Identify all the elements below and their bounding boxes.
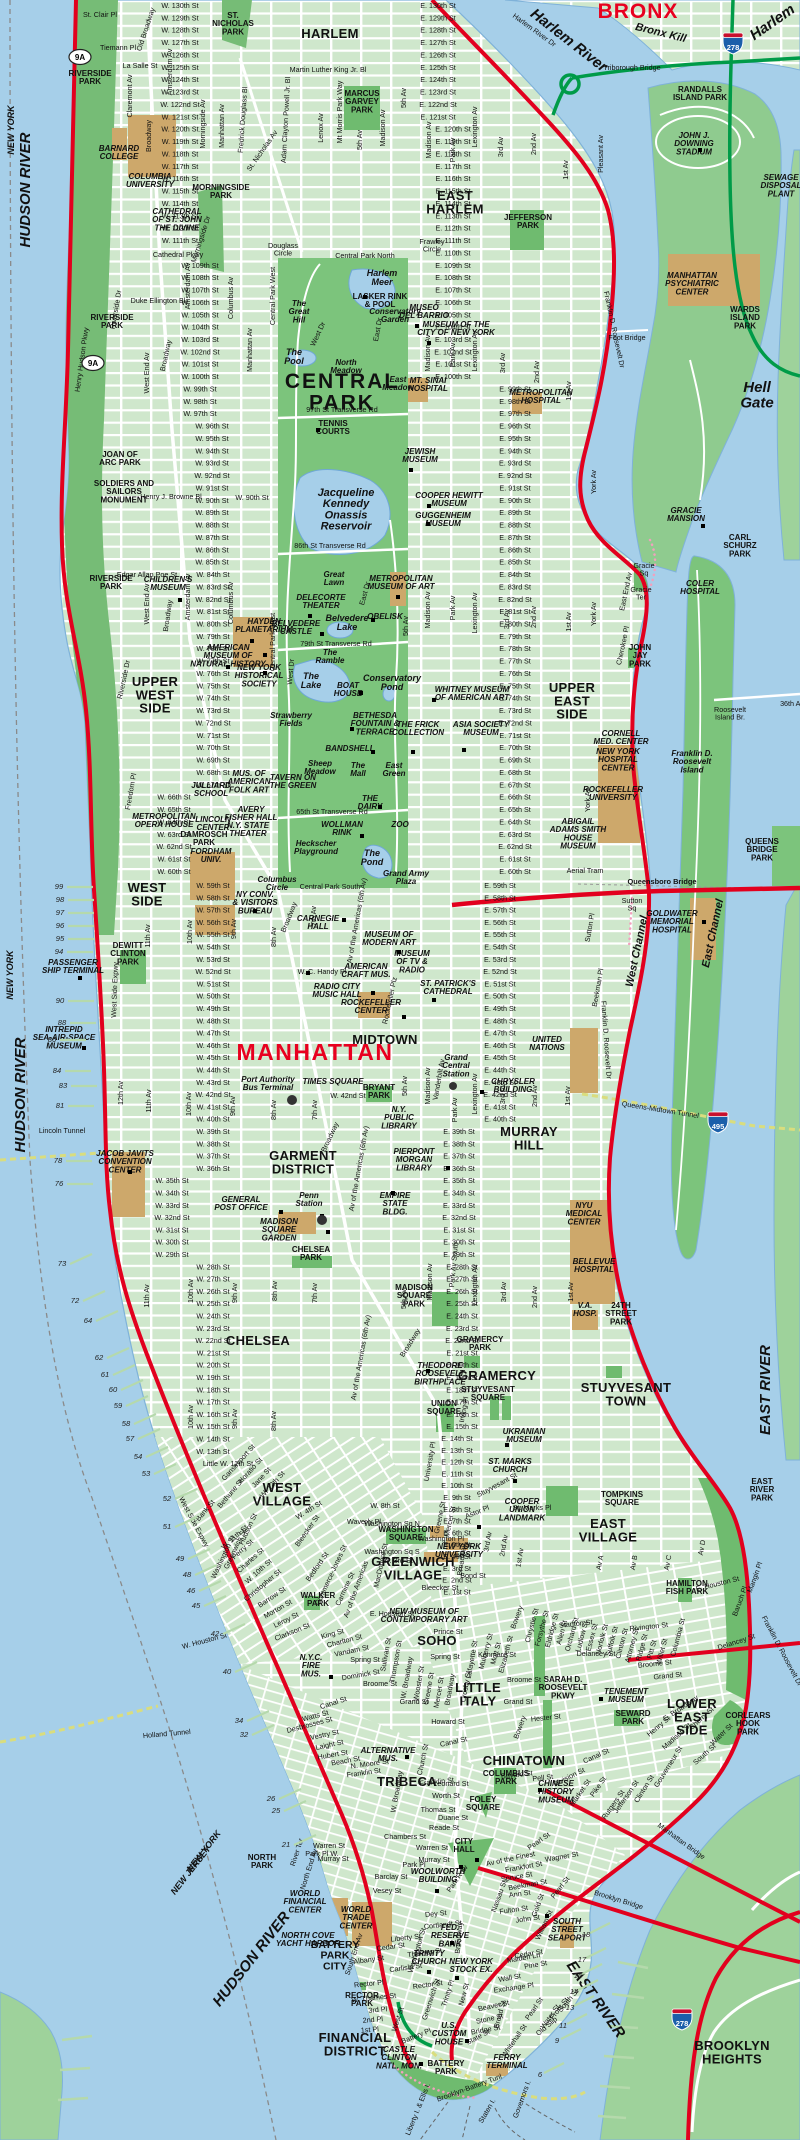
street-label: E. 93rd St	[499, 459, 531, 468]
map-label: Delancey St	[577, 1649, 616, 1658]
street-label: E. 34th St	[443, 1189, 475, 1198]
map-label: JEWISHMUSEUM	[402, 447, 438, 464]
map-label: Leonard St	[433, 1779, 468, 1788]
map-label: 10th Av	[186, 1405, 195, 1429]
map-label: Reade St	[429, 1823, 459, 1832]
street-label: E. 65th St	[499, 805, 531, 814]
street-label: W. 30th St	[155, 1238, 188, 1247]
map-label: 5th Av	[400, 1076, 409, 1096]
poi-marker	[450, 1941, 454, 1945]
street-label: W. 45th St	[196, 1053, 229, 1062]
map-label: 9th Av	[230, 1409, 239, 1429]
street-label: E. 4th St	[443, 1552, 471, 1561]
map-label: TheLake	[301, 671, 322, 690]
poi-marker	[432, 998, 436, 1002]
map-label: WARDSISLANDPARK	[730, 305, 760, 330]
map-label: HARLEM	[301, 26, 358, 41]
street-label: W. 119th St	[162, 137, 199, 146]
pier-number: 18	[582, 1930, 591, 1939]
station-dot	[449, 1082, 457, 1090]
map-label: Central Park North	[335, 251, 395, 260]
street-label: E. 70th St	[499, 743, 531, 752]
pier-number: 45	[192, 1601, 201, 1610]
street-label: W. 52nd St	[195, 967, 230, 976]
street-label: W. 90th St	[195, 496, 228, 505]
pier-number: 58	[122, 1419, 131, 1428]
street-label: E. 92nd St	[498, 471, 532, 480]
pier-number: 32	[240, 1730, 249, 1739]
map-label: TENEMENTMUSEUM	[604, 1687, 649, 1704]
street-label: W. 102nd St	[180, 347, 219, 356]
street-label: E. 26th St	[446, 1287, 478, 1296]
map-label: NEW YORKHOSPITALCENTER	[596, 747, 641, 772]
street-label: E. 72nd St	[498, 718, 532, 727]
map-label: GOLDWATERMEMORIALHOSPITAL	[646, 909, 698, 934]
street-label: E. 47th St	[484, 1029, 516, 1038]
poi-marker	[363, 295, 367, 299]
map-label: 5th Av	[399, 88, 408, 108]
map-label: BOATHOUSE	[334, 681, 363, 698]
street-label: W. 99th St	[183, 384, 216, 393]
map-label: Central Park South	[300, 882, 361, 891]
poi-marker	[455, 1976, 459, 1980]
pier-number: 40	[223, 1667, 232, 1676]
map-label: PASSENGERSHIP TERMINAL	[42, 958, 104, 975]
street-label: W. 74th St	[196, 694, 229, 703]
map-label: Broome St	[507, 1675, 541, 1684]
pier-number: 94	[55, 947, 63, 956]
street-label: W. 60th St	[157, 867, 190, 876]
map-label: 8th Av	[269, 1411, 278, 1431]
map-label: 2nd Pl	[362, 2014, 383, 2025]
street-label: W. 93rd St	[195, 459, 229, 468]
street-label: W. 70th St	[196, 743, 229, 752]
map-label: JOHN J.DOWNINGSTADIUM	[674, 131, 714, 156]
map-label: Amsterdam Av	[183, 573, 192, 620]
street-label: W. 50th St	[196, 992, 229, 1001]
street-label: E. 53rd St	[484, 955, 516, 964]
map-label: West End Av	[142, 583, 151, 624]
poi-marker	[475, 1858, 479, 1862]
map-label: 36th Av	[780, 699, 800, 708]
street-label: E. 90th St	[499, 496, 531, 505]
street-label: E. 62nd St	[498, 842, 532, 851]
map-label: NEW YORK	[5, 949, 15, 1000]
poi-marker	[427, 341, 431, 345]
pier-number: 95	[56, 934, 65, 943]
street-label: W. 98th St	[183, 397, 216, 406]
map-label: 11th Av	[143, 924, 152, 948]
poi-marker	[279, 1210, 283, 1214]
street-label: E. 104th St	[435, 323, 471, 332]
street-label: E. 109th St	[435, 261, 471, 270]
poi-marker	[391, 1191, 395, 1195]
street-label: E. 108th St	[435, 273, 471, 282]
map-label: MUS. OFAMERICANFOLK ART	[226, 769, 270, 794]
poi-marker	[82, 1046, 86, 1050]
poi-marker	[371, 750, 375, 754]
pier-number: 46	[187, 1586, 196, 1595]
map-label: Howard St	[431, 1717, 465, 1726]
poi-marker	[397, 950, 401, 954]
poi-marker	[432, 698, 436, 702]
street-label: E. 57th St	[484, 906, 516, 915]
pier-number: 81	[56, 1101, 64, 1110]
poi-marker	[480, 1090, 484, 1094]
street-label: E. 122nd St	[419, 100, 457, 109]
street-label: E. 103rd St	[435, 335, 471, 344]
map-label: Warren St	[416, 1843, 448, 1852]
street-label: E. 66th St	[499, 793, 531, 802]
route-shield-9A: 9A	[69, 50, 91, 65]
map-label: BROOKLYNHEIGHTS	[694, 2038, 770, 2066]
pier-number: 60	[109, 1385, 118, 1394]
street-label: W. 16th St	[196, 1410, 229, 1419]
street-label: W. 17th St	[196, 1398, 229, 1407]
street-label: E. 17th St	[446, 1398, 478, 1407]
street-label: W. 73rd St	[196, 706, 230, 715]
map-label: JOAN OFARC PARK	[99, 450, 141, 467]
map-label: 2nd Av	[530, 1286, 539, 1308]
united-nations-building	[570, 1028, 598, 1093]
map-label: Chambers St	[384, 1832, 426, 1841]
street-label: W. 116th St	[162, 174, 199, 183]
street-label: E. 123rd St	[420, 88, 456, 97]
pier-number: 99	[55, 882, 64, 891]
street-label: E. 91st St	[499, 483, 530, 492]
map-label: TOMPKINSSQUARE	[601, 1490, 644, 1507]
street-label: W. 44th St	[196, 1066, 229, 1075]
map-label: BELLEVUEHOSPITAL	[573, 1257, 616, 1274]
pier-number: 73	[58, 1259, 67, 1268]
street-label: E. 130th St	[420, 1, 456, 10]
street-label: E. 88th St	[499, 521, 531, 530]
map-label: Prince St	[433, 1627, 462, 1636]
map-label: Park Av	[450, 1097, 459, 1122]
street-label: E. 2nd St	[442, 1576, 472, 1585]
street-label: E. 48th St	[484, 1016, 516, 1025]
street-label: W. 125th St	[161, 63, 198, 72]
poi-marker	[427, 1970, 431, 1974]
poi-marker	[426, 522, 430, 526]
map-label: 9th Av	[230, 1283, 239, 1303]
street-label: E. 18th St	[446, 1385, 478, 1394]
map-label: EMPIRESTATEBLDG.	[380, 1191, 411, 1216]
street-label: E. 43rd St	[484, 1078, 516, 1087]
map-label: Barclay St	[375, 1872, 408, 1881]
map-label: Duke Ellington Bl	[131, 296, 186, 305]
pier-number: 48	[183, 1570, 192, 1579]
map-label: GrandCentralStation	[442, 1053, 470, 1078]
pier-number: 53	[142, 1469, 151, 1478]
street-label: W. 42nd St	[195, 1090, 230, 1099]
street-label: W. 83rd St	[196, 582, 230, 591]
poi-marker	[409, 468, 413, 472]
poi-marker	[263, 671, 267, 675]
map-label: N.Y.C.FIREMUS.	[300, 1653, 323, 1678]
map-label: N.Y. STATETHEATER	[227, 821, 270, 838]
poi-marker	[505, 1443, 509, 1447]
map-label: York Av	[583, 788, 592, 812]
pier-number: 15	[574, 1971, 583, 1980]
street-label: W. 109th St	[181, 261, 218, 270]
map-label: CHELSEA	[226, 1333, 291, 1348]
pier-number: 78	[54, 1156, 63, 1165]
street-label: W. 18th St	[196, 1385, 229, 1394]
map-label: Lexington Av	[470, 1073, 479, 1114]
map-label: York Av	[589, 602, 598, 626]
map-label: Mt Morris Park Way	[335, 80, 344, 143]
map-label: FOLEYSQUARE	[466, 1795, 501, 1812]
street-label: W. 24th St	[196, 1312, 229, 1321]
street-label: E. 42nd St	[483, 1090, 517, 1099]
street-label: W. 114th St	[162, 199, 199, 208]
street-label: E. 71st St	[499, 731, 530, 740]
map-label: THE FRICKCOLLECTION	[392, 720, 444, 737]
street-label: W. 27th St	[196, 1275, 229, 1284]
street-label: W. 94th St	[195, 446, 228, 455]
map-label: Madison Av	[425, 1263, 434, 1300]
map-label: 1st Av	[563, 1086, 572, 1106]
street-label: E. 120th St	[435, 125, 471, 134]
pier-number: 57	[126, 1434, 135, 1443]
map-label: NEW YORK	[6, 104, 16, 155]
map-label: 1st Av	[566, 1282, 575, 1302]
street-label: E. 8th St	[443, 1505, 471, 1514]
street-label: E. 40th St	[484, 1115, 516, 1124]
map-label: GRACIEMANSION	[667, 506, 705, 523]
poi-marker	[459, 1865, 463, 1869]
street-label: E. 107th St	[435, 286, 471, 295]
street-label: E. 56th St	[484, 918, 516, 927]
street-label: W. 68th St	[196, 768, 229, 777]
map-label: Columbus Av	[226, 276, 235, 319]
poi-marker	[316, 428, 320, 432]
poi-marker	[426, 1369, 430, 1373]
street-label: W. 111th St	[162, 236, 198, 245]
street-label: E. 77th St	[499, 657, 531, 666]
map-label: 1st Av	[564, 381, 573, 401]
street-label: W. 86th St	[195, 545, 228, 554]
street-label: W. 71st St	[197, 731, 230, 740]
street-label: W. 100th St	[181, 372, 218, 381]
map-label: Lincoln Tunnel	[39, 1126, 86, 1135]
svg-text:495: 495	[712, 1122, 725, 1131]
map-label: Spring St	[350, 1655, 380, 1664]
street-label: E. 46th St	[484, 1041, 516, 1050]
svg-text:9A: 9A	[88, 359, 98, 368]
poi-marker	[446, 1166, 450, 1170]
map-label: 11th Av	[144, 1089, 153, 1113]
pier-number: 34	[235, 1716, 243, 1725]
street-label: E. 119th St	[435, 137, 470, 146]
street-label: E. 41st St	[484, 1102, 515, 1111]
street-label: E. 100th St	[435, 372, 471, 381]
poi-marker	[263, 653, 267, 657]
street-label: W. 118th St	[162, 149, 199, 158]
map-label: 1st Av	[564, 612, 573, 632]
street-label: E. 37th St	[443, 1152, 475, 1161]
poi-marker	[253, 909, 257, 913]
pier-number: 76	[55, 1179, 64, 1188]
manhattan-street-map: BRONXHarlem RiverBronx KillHarlemHarlem …	[0, 0, 800, 2140]
street-label: E. 51st St	[484, 979, 515, 988]
poi-marker	[226, 665, 230, 669]
map-label: York Av	[589, 470, 598, 494]
street-label: W. 61st St	[158, 855, 191, 864]
street-label: E. 5th St	[443, 1540, 471, 1549]
street-label: E. 111th St	[436, 236, 471, 245]
street-label: E. 95th St	[499, 434, 531, 443]
map-label: JacquelineKennedyOnassisReservoir	[318, 487, 375, 533]
map-label: Lexington Av	[470, 106, 479, 147]
street-label: E. 113th St	[435, 211, 470, 220]
street-label: W. 58th St	[196, 893, 229, 902]
street-label: W. 89th St	[195, 508, 228, 517]
pier-number: 83	[59, 1081, 68, 1090]
map-label: Queensboro Bridge	[628, 877, 697, 886]
map-label: WESTSIDE	[128, 880, 167, 908]
map-label: La Salle St	[123, 61, 158, 70]
queensbridge-park-green	[772, 826, 800, 886]
map-label: Madison Av	[378, 109, 387, 146]
pier-number: 51	[163, 1522, 171, 1531]
poi-marker	[128, 1170, 132, 1174]
street-label: E. 61st St	[499, 855, 530, 864]
street-label: E. 30th St	[443, 1238, 475, 1247]
pier-number: 97	[56, 908, 65, 917]
map-label: Grand St	[504, 1697, 533, 1706]
map-label: Claremont Av	[125, 74, 134, 117]
street-label: E. 97th St	[499, 409, 531, 418]
map-label: 2nd Av	[532, 361, 541, 383]
map-label: Triborough Bridge	[603, 63, 660, 72]
poi-marker	[306, 971, 310, 975]
street-label: W. 82nd St	[195, 595, 230, 604]
street-label: W. 62nd St	[156, 842, 191, 851]
street-label: E. 12th St	[441, 1458, 473, 1467]
poi-marker	[329, 1675, 333, 1679]
street-label: W. 107th St	[181, 286, 218, 295]
street-label: W. 75th St	[196, 681, 229, 690]
street-label: W. 51st St	[197, 979, 230, 988]
street-label: E. 19th St	[446, 1373, 478, 1382]
street-label: W. 28th St	[196, 1262, 229, 1271]
street-label: E. 102nd St	[434, 347, 472, 356]
map-label: BRONX	[598, 0, 679, 23]
map-label: 8th Av	[269, 927, 278, 947]
street-label: W. 14th St	[196, 1435, 229, 1444]
map-label: Madison Av	[424, 121, 433, 158]
street-label: W. 41st St	[197, 1102, 230, 1111]
street-label: E. 117th St	[435, 162, 470, 171]
map-label: PIERPONTMORGANLIBRARY	[394, 1147, 436, 1172]
map-label: CHINESEHISTORYMUSEUM	[538, 1779, 574, 1804]
poi-marker	[419, 2062, 423, 2066]
street-label: W. 95th St	[195, 434, 228, 443]
street-label: E. 15th St	[446, 1422, 478, 1431]
map-label: W. C. Handy Pl	[298, 967, 347, 976]
street-label: W. 129th St	[161, 13, 198, 22]
poi-marker	[698, 148, 702, 152]
map-label: 10th Av	[186, 1279, 195, 1303]
poi-marker	[513, 1479, 517, 1483]
street-label: E. 98th St	[499, 397, 531, 406]
map-label: Pleasant Av	[596, 135, 605, 173]
map-label: BANDSHELL	[325, 744, 374, 753]
street-label: E. 105th St	[435, 310, 471, 319]
map-label: CITYHALL	[453, 1837, 474, 1854]
map-label: Manhattan Av	[217, 104, 226, 148]
street-label: E. 110th St	[435, 248, 470, 257]
poi-marker	[435, 1889, 439, 1893]
map-label: EAST RIVER	[757, 1345, 774, 1435]
street-label: E. 29th St	[443, 1250, 475, 1259]
map-label: Vesey St	[373, 1886, 401, 1895]
map-label: Madison Av	[423, 1067, 432, 1104]
poi-marker	[371, 618, 375, 622]
map-label: 8th Av	[270, 1281, 279, 1301]
poi-marker	[538, 1788, 542, 1792]
street-label: W. 64th St	[157, 817, 190, 826]
poi-marker	[378, 805, 382, 809]
map-label: 97th St Transverse Rd	[306, 405, 378, 414]
map-label: ZOO	[390, 820, 409, 829]
map-label: UNITEDNATIONS	[529, 1035, 565, 1052]
poi-marker	[342, 918, 346, 922]
street-label: E. 85th St	[499, 558, 531, 567]
map-canvas: BRONXHarlem RiverBronx KillHarlemHarlem …	[0, 0, 800, 2140]
street-label: E. 25th St	[446, 1299, 478, 1308]
street-label: E. 83rd St	[499, 582, 531, 591]
street-label: E. 81st St	[499, 607, 530, 616]
street-label: W. 33rd St	[155, 1201, 189, 1210]
map-label: HAMILTONFISH PARK	[666, 1579, 709, 1596]
street-label: E. 21st St	[446, 1348, 477, 1357]
poi-marker	[178, 598, 182, 602]
street-label: W. 69th St	[196, 756, 229, 765]
street-label: W. 80th St	[196, 620, 229, 629]
street-label: E. 124th St	[420, 75, 456, 84]
street-label: W. 36th St	[196, 1164, 229, 1173]
map-label: Spring St	[430, 1652, 460, 1661]
station-dot	[287, 1095, 297, 1105]
map-label: TENNISCOURTS	[316, 419, 350, 436]
map-label: TRIBECA	[377, 1774, 437, 1789]
street-label: W. 117th St	[162, 162, 199, 171]
street-label: W. 47th St	[196, 1029, 229, 1038]
svg-text:9A: 9A	[75, 53, 85, 62]
street-label: W. 128th St	[161, 26, 198, 35]
street-label: E. 39th St	[443, 1127, 475, 1136]
map-label: EASTRIVERPARK	[750, 1477, 775, 1502]
pier-number: 26	[266, 1794, 276, 1803]
street-label: W. 39th St	[196, 1127, 229, 1136]
map-label: RooseveltIsland Br.	[714, 705, 746, 721]
pier-number: 84	[53, 1066, 61, 1075]
map-label: 10th Av	[185, 920, 194, 944]
poi-marker	[320, 632, 324, 636]
street-label: W. 130th St	[161, 1, 198, 10]
street-label: E. 63rd St	[499, 830, 531, 839]
street-label: W. 106th St	[181, 298, 218, 307]
street-label: E. 50th St	[484, 992, 516, 1001]
street-label: E. 84th St	[499, 570, 531, 579]
map-label: 86th St Transverse Rd	[294, 541, 366, 550]
map-label: 1st Av	[561, 160, 570, 180]
street-label: E. 115th St	[435, 187, 470, 196]
map-label: UKRANIANMUSEUM	[503, 1427, 546, 1444]
